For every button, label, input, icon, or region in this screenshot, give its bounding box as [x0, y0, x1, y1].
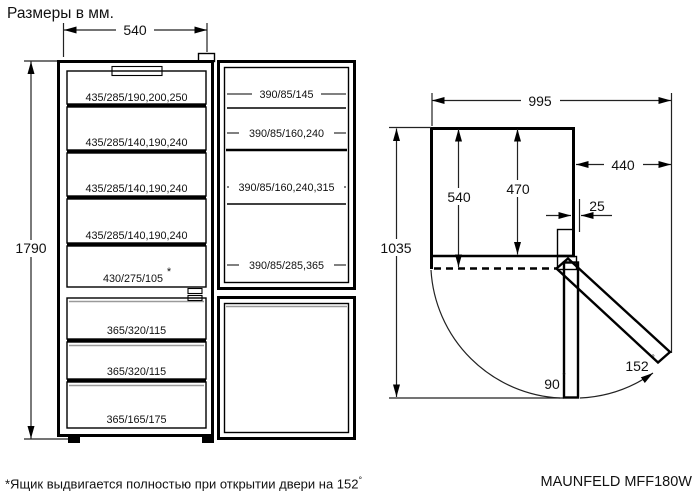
footnote-text: *Ящик выдвигается полностью при открытии…	[5, 476, 359, 491]
dim-front-width: 540	[123, 22, 147, 38]
drawer-label: 365/165/175	[106, 414, 166, 426]
drawer-label: 365/320/115	[107, 325, 166, 337]
door-swing-arc-90	[431, 270, 560, 398]
hinge-block	[558, 230, 574, 256]
foot	[68, 437, 80, 443]
angle-90-label: 90	[544, 376, 560, 392]
door-shelf-label: 390/85/160,240,315	[238, 182, 334, 194]
dim-total-depth: 995	[528, 93, 552, 109]
foot	[202, 437, 214, 443]
degree-sign: °	[651, 353, 655, 363]
degree-sign: °	[562, 371, 566, 381]
shelf-label: 435/285/140,190,240	[85, 183, 187, 195]
shelf-label: 435/285/190,200,250	[85, 92, 187, 104]
door-shelf-label: 390/85/285,365	[249, 260, 324, 272]
dim-depth-body: 470	[506, 181, 530, 197]
dimension-sheet: Размеры в мм. 540 1790	[0, 0, 700, 498]
dim-depth-with-door: 540	[447, 189, 471, 205]
shelf-label: 435/285/140,190,240	[85, 230, 187, 242]
dim-front-height: 1790	[15, 240, 46, 256]
freezer-door-inner	[225, 304, 349, 433]
freezer-door-outline	[219, 298, 355, 439]
crisper-asterisk: *	[167, 266, 172, 278]
model-name: MAUNFELD MFF180W	[541, 474, 692, 490]
drawer-label: 365/320/115	[107, 366, 166, 378]
door-swing-arc-152	[580, 373, 653, 398]
crisper-label: 430/275/105	[103, 273, 163, 285]
dim-depth-door-open: 1035	[380, 240, 411, 256]
middle-hinge	[188, 289, 202, 294]
door-open-152	[557, 259, 671, 363]
dim-hinge-offset: 25	[589, 198, 605, 214]
door-shelf-label: 390/85/145	[259, 89, 313, 101]
dim-door-clearance: 440	[611, 157, 635, 173]
footnote-degree: °	[359, 475, 363, 485]
fridge-dimension-drawing: 540 1790 435/285/190,200,250 435/285/140…	[0, 0, 700, 468]
angle-152-label: 152	[625, 358, 649, 374]
top-view: 995 440 540 470 25	[374, 92, 672, 398]
front-view-cabinet: 540 1790 435/285/190,200,250 435/285/140…	[11, 21, 215, 443]
shelf-label: 435/285/140,190,240	[85, 137, 187, 149]
footnote: *Ящик выдвигается полностью при открытии…	[5, 475, 362, 491]
door-shelf-label: 390/85/160,240	[249, 128, 324, 140]
